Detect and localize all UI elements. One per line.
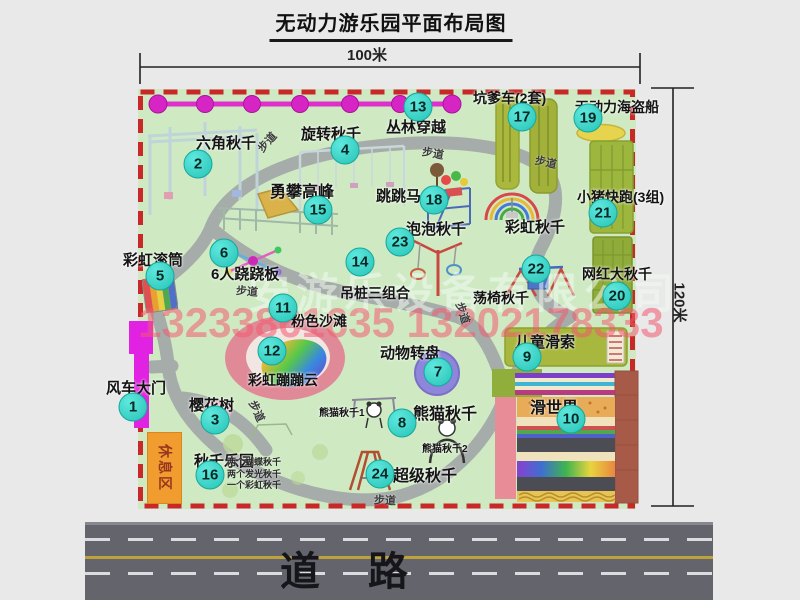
playground-plan: 无动力游乐园平面布局图 100米 120米	[0, 0, 800, 600]
marker-2: 2	[184, 150, 213, 179]
swing-park-notes: 两个蝴蝶秋千两个发光秋千一个彩虹秋千	[227, 457, 281, 492]
label-24: 超级秋千	[393, 462, 457, 486]
marker-24: 24	[366, 460, 395, 489]
swing-park-note-line: 两个发光秋千	[227, 469, 281, 481]
marker-12: 12	[258, 337, 287, 366]
marker-3: 3	[201, 406, 230, 435]
marker-17: 17	[508, 103, 537, 132]
label-2: 六角秋千	[196, 132, 256, 153]
marker-10: 10	[557, 405, 586, 434]
watermark-phone: 13233861635 13202178333	[138, 299, 664, 347]
marker-1: 1	[119, 393, 148, 422]
marker-22: 22	[522, 255, 551, 284]
rest-area: 休息区	[147, 432, 182, 504]
rest-area-label: 休息区	[155, 444, 175, 492]
label-12: 彩虹蹦蹦云	[248, 370, 318, 390]
marker-16: 16	[196, 461, 225, 490]
label-14: 吊桩三组合	[340, 283, 410, 303]
marker-8: 8	[388, 409, 417, 438]
dimension-width-label: 100米	[347, 44, 387, 65]
road: 道路	[85, 522, 713, 600]
marker-23: 23	[386, 228, 415, 257]
marker-11: 11	[269, 294, 298, 323]
label-22: 荡椅秋千	[473, 288, 529, 308]
marker-13: 13	[404, 93, 433, 122]
label-17: 坑爹车(2套)	[473, 88, 546, 108]
marker-20: 20	[603, 282, 632, 311]
marker-7: 7	[424, 358, 453, 387]
marker-6: 6	[210, 239, 239, 268]
label-panda-swing-2: 熊猫秋千2	[422, 440, 468, 455]
marker-14: 14	[346, 248, 375, 277]
marker-4: 4	[331, 136, 360, 165]
label-8: 熊猫秋千	[413, 400, 477, 424]
page-title: 无动力游乐园平面布局图	[270, 7, 513, 42]
swing-park-note-line: 两个蝴蝶秋千	[227, 457, 281, 469]
marker-15: 15	[304, 196, 333, 225]
label-rainbow-swing: 彩虹秋千	[505, 216, 565, 237]
marker-5: 5	[146, 262, 175, 291]
swing-park-note-line: 一个彩虹秋千	[227, 480, 281, 492]
road-label: 道路	[280, 539, 456, 597]
label-11: 粉色沙滩	[291, 311, 347, 331]
marker-18: 18	[420, 186, 449, 215]
label-23: 泡泡秋千	[406, 218, 466, 239]
trail-label-4: 步道	[235, 282, 258, 300]
label-18: 跳跳马	[376, 185, 421, 206]
label-panda-swing-1: 熊猫秋千1	[319, 404, 365, 419]
marker-19: 19	[574, 104, 603, 133]
marker-9: 9	[513, 343, 542, 372]
trail-label-6: 步道	[374, 491, 397, 508]
marker-21: 21	[589, 199, 618, 228]
